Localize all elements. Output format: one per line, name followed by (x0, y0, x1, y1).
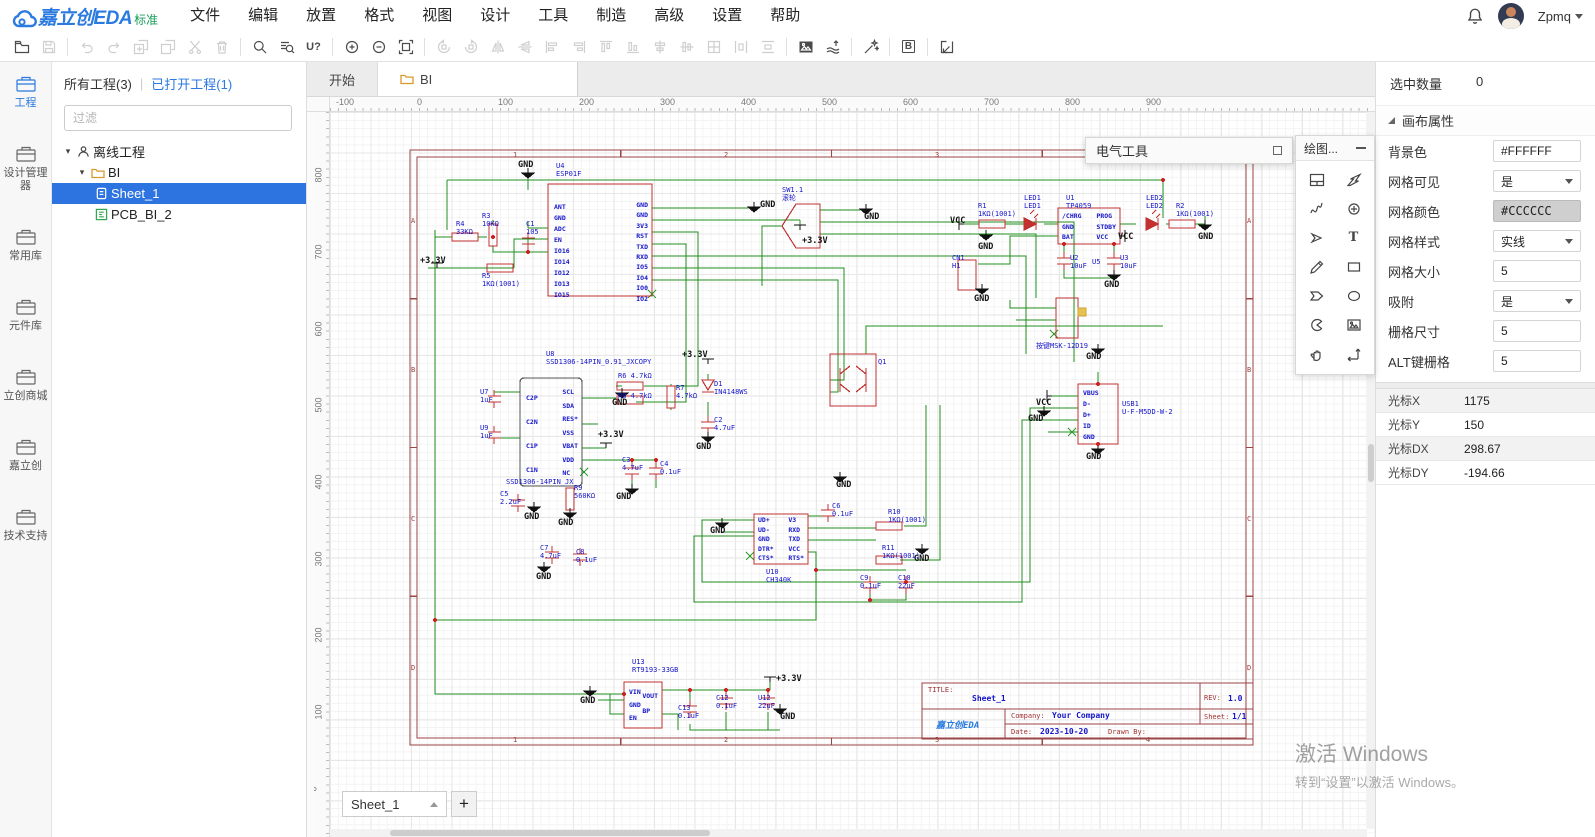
property-label: 吸附 (1388, 292, 1414, 311)
project-panel: 所有工程(3) | 已打开工程(1) ▾ 离线工程 ▾ BI (52, 62, 307, 837)
document-tab[interactable]: 开始 (307, 62, 378, 96)
rail-item[interactable]: 嘉立创 (4, 437, 48, 473)
schematic-label: +3.3V (682, 350, 708, 360)
rail-item[interactable]: 立创商城 (4, 367, 48, 403)
document-tabs: 开始 BI (307, 62, 1375, 97)
ruler-number: 500 (822, 97, 837, 107)
schematic-label: U1 TP4059 (1066, 194, 1091, 211)
chevron-down-icon (1575, 14, 1583, 19)
theme-image-button[interactable] (792, 35, 819, 59)
bus-tool[interactable] (1298, 194, 1335, 223)
ruler-number: 700 (984, 97, 999, 107)
property-row: 网格样式 实线 (1376, 226, 1595, 256)
distribute-horizontal-button (727, 35, 754, 59)
rotate-ccw-button (430, 35, 457, 59)
document-tab-label: BI (420, 72, 432, 87)
ruler-number: 800 (1065, 97, 1080, 107)
tree-node-label: 离线工程 (93, 142, 145, 161)
ruler-number: 900 (1146, 97, 1161, 107)
import-update-button[interactable] (819, 35, 846, 59)
pan-hand-tool[interactable] (1298, 339, 1335, 368)
schematic-label: VCC (950, 216, 965, 226)
schematic-label: C1 105 (526, 220, 539, 237)
schematic-label: VCC (1118, 232, 1133, 242)
property-row: 网格颜色 #CCCCCC (1376, 196, 1595, 226)
schematic-label: GND (696, 442, 711, 452)
rail-item[interactable]: 工程 (4, 74, 48, 110)
open-project-button[interactable] (8, 35, 35, 59)
menubar: 嘉立创EDA 标准 文件编辑放置格式视图设计工具制造高级设置帮助 Zpmq (0, 0, 1595, 32)
property-value-control[interactable]: 5 (1493, 260, 1581, 282)
property-value-control[interactable]: 实线 (1493, 230, 1581, 252)
distribute-vertical-button (754, 35, 781, 59)
cursor-row: 光标DX 298.67 (1376, 437, 1595, 461)
image-tool[interactable] (1335, 310, 1372, 339)
align-right-button (565, 35, 592, 59)
schematic-label: 3 (935, 151, 939, 159)
filter-box (64, 105, 294, 131)
schematic-label: SCL SDA RES* VSS VBAT VDD NC (562, 386, 578, 481)
wizard-button[interactable] (857, 35, 884, 59)
cursor-row-label: 光标DX (1376, 440, 1464, 457)
horizontal-scrollbar-thumb[interactable] (390, 830, 710, 836)
titleblock-company-value: Your Company (1052, 711, 1110, 720)
rail-item-icon (15, 297, 37, 317)
property-row: 网格可见 是 (1376, 166, 1595, 196)
copy-button (127, 35, 154, 59)
vertical-ruler: 8007006005004003002001000 (314, 112, 330, 837)
canvas-wrap: -1000100200300400500600700800900 8007006… (307, 97, 1375, 837)
ruler-number: 200 (314, 627, 324, 642)
cursor-row-value: 298.67 (1464, 442, 1501, 456)
tree-caret-icon: ▾ (76, 167, 88, 178)
rail-item-icon (15, 507, 37, 527)
rectangle-tool[interactable] (1335, 252, 1372, 281)
titleblock-date-value: 2023-10-20 (1040, 727, 1088, 736)
property-row: 栅格尺寸 5 (1376, 316, 1595, 346)
property-label: 网格可见 (1388, 172, 1440, 191)
main-layout: 工程 设计管理器 常用库 元件库 立创商城 嘉立创 技术支持 (0, 62, 1595, 837)
selected-count-value: 0 (1476, 74, 1483, 93)
sheet-bar: Sheet_1 + (342, 791, 477, 817)
find-designator-button[interactable]: U? (300, 35, 327, 59)
schematic-label: 2 (724, 151, 728, 159)
cursor-row: 光标X 1175 (1376, 389, 1595, 413)
titleblock-logo: 嘉立创EDA (936, 718, 979, 731)
bus-entry-tool[interactable] (1335, 194, 1372, 223)
rail-item-label: 常用库 (4, 250, 48, 263)
schematic-label: GND (1086, 452, 1101, 462)
zoom-in-button[interactable] (338, 35, 365, 59)
titleblock-rev-value: 1.0 (1228, 694, 1242, 703)
cursor-row: 光标Y 150 (1376, 413, 1595, 437)
drawing-tools-grid: T (1296, 161, 1374, 372)
text-tool-label: T (1349, 230, 1359, 245)
properties-panel: 选中数量 0 画布属性 背景色 #FFFFFF 网格可见 是 网格颜色 #CCC… (1375, 62, 1595, 837)
drawing-panel-title: 绘图... (1296, 140, 1356, 157)
schematic-label: R10 1KΩ(1001) (888, 508, 926, 525)
find-similar-button[interactable] (273, 35, 300, 59)
rail-item-icon (15, 227, 37, 247)
dimension-tool[interactable] (1335, 339, 1372, 368)
ruler-number: 100 (314, 704, 324, 719)
undo-button (73, 35, 100, 59)
schematic-label: LED2 LED2 (1146, 194, 1163, 211)
schematic-label: 2 (724, 736, 728, 744)
schematic-label: C2 4.7uF (714, 416, 735, 433)
schematic-label: C3 4.7uF (622, 456, 643, 473)
ruler-corner (307, 97, 330, 112)
menu-item[interactable]: 视图 (408, 0, 466, 32)
align-bottom-button (619, 35, 646, 59)
schematic-label: 按键MSK-12D19 (1036, 342, 1088, 350)
titleblock-title-label: TITLE: (928, 686, 953, 694)
paste-button (154, 35, 181, 59)
rail-item[interactable]: 常用库 (4, 227, 48, 263)
schematic-label: R4 33KΩ (456, 220, 473, 237)
folder-icon (91, 167, 105, 179)
schematic-label: GND (1104, 280, 1119, 290)
schematic-label: VBUS D- D+ ID GND (1083, 388, 1099, 443)
arc-tool[interactable] (1298, 310, 1335, 339)
menu-item[interactable]: 设置 (698, 0, 756, 32)
logo-text: 嘉立创EDA (38, 3, 132, 30)
schematic-label: GND GND 3V3 RST TXD RXD IO5 IO4 IO0 IO2 (636, 200, 648, 304)
electrical-tools-panel: 电气工具 (1085, 137, 1293, 164)
rail-item[interactable]: 技术支持 (4, 507, 48, 543)
schematic-label: GND (536, 572, 551, 582)
schematic-label: R6 4.7kΩ (618, 372, 652, 380)
schematic-label: C2P C2N C1P C1N (526, 386, 538, 482)
cloud-logo-icon (12, 10, 38, 30)
schematic-label: C (411, 515, 415, 523)
cursor-position-table: 光标X 1175 光标Y 150 光标DX 298.67 光标DY -194.6… (1376, 389, 1595, 485)
schematic-label: GND (580, 696, 595, 706)
schematic-label: U13 RT9193-33GB (632, 658, 678, 675)
ruler-number: 300 (660, 97, 675, 107)
schematic-label: R11 1KΩ(1001) (882, 544, 920, 561)
schematic-label: R5 1KΩ(1001) (482, 272, 520, 289)
schematic-label: C6 0.1uF (832, 502, 853, 519)
ruler-number: 600 (314, 321, 324, 336)
schematic-label: +3.3V (802, 236, 828, 246)
find-designator-label: U? (306, 41, 321, 53)
titleblock-company-label: Company: (1011, 712, 1045, 720)
sheet-selector[interactable]: Sheet_1 (342, 791, 447, 817)
schematic-label: GND (616, 492, 631, 502)
jlceda-app: 嘉立创EDA 标准 文件编辑放置格式视图设计工具制造高级设置帮助 Zpmq U? (0, 0, 1595, 837)
pcb-icon (95, 208, 108, 221)
cursor-row-value: -194.66 (1464, 466, 1505, 480)
vertical-scrollbar-thumb[interactable] (1368, 444, 1374, 482)
schematic-label: U10 CH340K (766, 568, 791, 585)
current-sheet-label: Sheet_1 (351, 797, 399, 812)
schematic-label: C13 0.1uF (678, 704, 699, 721)
align-center-vertical-button (673, 35, 700, 59)
zoom-out-button[interactable] (365, 35, 392, 59)
schematic-label: Q1 (878, 358, 886, 366)
schematic-label: 1 (513, 736, 517, 744)
rail-item-icon (15, 74, 37, 94)
filter-input[interactable] (64, 105, 292, 131)
cursor-row-label: 光标X (1376, 392, 1464, 409)
redo-button (100, 35, 127, 59)
tree-node-sheet1[interactable]: Sheet_1 (52, 183, 306, 204)
horizontal-ruler: -1000100200300400500600700800900 (330, 97, 1375, 112)
search-button[interactable] (246, 35, 273, 59)
titleblock-drawnby-label: Drawn By: (1108, 728, 1146, 736)
rail-item-label: 工程 (4, 97, 48, 110)
selected-count-label: 选中数量 (1390, 74, 1442, 93)
schematic-label: D (411, 664, 415, 672)
pencil-tool[interactable] (1298, 252, 1335, 281)
schematic-label: U3 10uF (1120, 254, 1137, 271)
menu-item[interactable]: 格式 (350, 0, 408, 32)
cursor-row-label: 光标Y (1376, 416, 1464, 433)
property-value-control[interactable]: 是 (1493, 290, 1581, 312)
cut-button (181, 35, 208, 59)
polygon-tool[interactable] (1298, 281, 1335, 310)
rail-item-label: 元件库 (4, 320, 48, 333)
align-left-button (538, 35, 565, 59)
schematic-label: C9 0.1uF (860, 574, 881, 591)
schematic-label: B (1247, 366, 1251, 374)
left-icon-rail: 工程 设计管理器 常用库 元件库 立创商城 嘉立创 技术支持 (0, 62, 52, 837)
titleblock-sheet-value: 1/1 (1232, 712, 1246, 721)
rail-item-icon (15, 437, 37, 457)
rail-item-icon (15, 367, 37, 387)
app-logo[interactable]: 嘉立创EDA 标准 (12, 3, 158, 30)
menu-item[interactable]: 制造 (582, 0, 640, 32)
schematic-label: V3 RXD TXD VCC RTS* (788, 516, 804, 564)
schematic-label: U5 (1092, 258, 1100, 266)
property-label: 网格颜色 (1388, 202, 1440, 221)
schematic-label: GND (974, 294, 989, 304)
property-value-control[interactable]: #CCCCCC (1493, 200, 1581, 222)
schematic-label: R8 4.7kΩ (618, 392, 652, 400)
schematic-label: GND (518, 160, 533, 170)
rotate-cw-button (457, 35, 484, 59)
bom-button[interactable]: B (895, 35, 922, 59)
cursor-row-label: 光标DY (1376, 464, 1464, 481)
schematic-label: D1 IN4148WS (714, 380, 748, 397)
schematic-label: U2 10uF (1070, 254, 1087, 271)
ruler-number: -100 (336, 97, 354, 107)
user-avatar[interactable] (1498, 3, 1524, 29)
schematic-label: GND (1086, 352, 1101, 362)
schematic-label: R2 1KΩ(1001) (1176, 202, 1214, 219)
zoom-fit-button[interactable] (392, 35, 419, 59)
menu-item[interactable]: 高级 (640, 0, 698, 32)
tree-caret-icon: ▾ (62, 146, 74, 157)
rail-item-label: 立创商城 (4, 390, 48, 403)
schematic-label: C (1247, 515, 1251, 523)
panel-divider (1376, 382, 1595, 389)
schematic-label: R1 1KΩ(1001) (978, 202, 1016, 219)
notification-bell-icon[interactable] (1466, 7, 1484, 25)
folder-icon (400, 73, 414, 85)
schematic-label: +3.3V (420, 256, 446, 266)
tree-node-project-bi[interactable]: ▾ BI (52, 162, 306, 183)
flip-vertical-button (511, 35, 538, 59)
schematic-label: U9 1uF (480, 424, 493, 441)
schematic-label: U4 ESP01F (556, 162, 581, 179)
schematic-label: R7 4.7kΩ (676, 384, 697, 401)
schematic-label: U7 1uF (480, 388, 493, 405)
schematic-label: D (1247, 664, 1251, 672)
schematic-label: LED1 LED1 (1024, 194, 1041, 211)
schematic-label: ANT GND ADC EN IO16 IO14 IO12 IO13 IO15 (554, 202, 570, 301)
align-top-button (592, 35, 619, 59)
schematic-label: C5 2.2uF (500, 490, 521, 507)
schematic-label: VIN GND EN (629, 686, 641, 725)
schematic-label: GND (836, 480, 851, 490)
property-label: 网格大小 (1388, 262, 1440, 281)
rail-item-label: 设计管理器 (4, 167, 48, 193)
schematic-label: GND (558, 518, 573, 528)
schematic-label: C12 0.1uF (716, 694, 737, 711)
schematic-label: C8 0.1uF (576, 548, 597, 565)
ellipse-tool[interactable] (1335, 281, 1372, 310)
ruler-number: 200 (579, 97, 594, 107)
sheet-frame-tool[interactable] (1298, 165, 1335, 194)
property-value-control[interactable]: 5 (1493, 350, 1581, 372)
property-value-control[interactable]: #FFFFFF (1493, 140, 1581, 162)
schematic-label: GND (1028, 414, 1043, 424)
canvas-area: 开始 BI -1000100200300400500600700800900 8… (307, 62, 1375, 837)
rail-item-label: 技术支持 (4, 530, 48, 543)
schematic-label: A (1247, 217, 1251, 225)
tree-node-offline-projects[interactable]: ▾ 离线工程 (52, 141, 306, 162)
menu-item[interactable]: 编辑 (234, 0, 292, 32)
property-value-control[interactable]: 是 (1493, 170, 1581, 192)
ruler-number: 0 (314, 786, 319, 791)
toolbar: U? B (0, 32, 1595, 62)
property-label: 背景色 (1388, 142, 1427, 161)
align-grid-button (700, 35, 727, 59)
document-tab[interactable]: BI (378, 62, 578, 96)
user-menu[interactable]: Zpmq (1538, 9, 1583, 24)
logo-badge: 标准 (134, 11, 158, 28)
menu-item[interactable]: 帮助 (756, 0, 814, 32)
tree-node-label: Sheet_1 (111, 186, 159, 201)
export-button[interactable] (933, 35, 960, 59)
add-sheet-button[interactable]: + (451, 791, 477, 817)
property-label: 网格样式 (1388, 232, 1440, 251)
property-row: 背景色 #FFFFFF (1376, 136, 1595, 166)
schematic-label: UD+ UD- GND DTR* CTS* (758, 516, 774, 564)
align-center-horizontal-button (646, 35, 673, 59)
document-tab-label: 开始 (329, 70, 355, 89)
drawing-tools-panel: 绘图... T (1295, 135, 1375, 375)
titleblock-date-label: Date: (1011, 728, 1032, 736)
schematic-label: U8 SSD1306-14PIN_0.91_JXCOPY (546, 350, 651, 367)
restore-panel-button[interactable] (1273, 146, 1282, 155)
schematic-label: GND (864, 212, 879, 222)
user-icon (77, 145, 90, 158)
chevron-up-icon (430, 802, 438, 807)
project-tabs: 所有工程(3) | 已打开工程(1) (52, 62, 306, 101)
schematic-label: U12 22uF (758, 694, 775, 711)
schematic-label: +3.3V (598, 430, 624, 440)
tree-node-label: PCB_BI_2 (111, 207, 172, 222)
ruler-number: 500 (314, 397, 324, 412)
wire-tool[interactable] (1335, 165, 1372, 194)
schematic-label: GND (1198, 232, 1213, 242)
schematic-label: SW1.1 滚轮 (782, 186, 803, 203)
rail-item-label: 嘉立创 (4, 460, 48, 473)
tree-node-pcb[interactable]: PCB_BI_2 (52, 204, 306, 225)
property-label: 栅格尺寸 (1388, 322, 1440, 341)
titleblock-rev-label: REV: (1204, 694, 1221, 702)
titleblock-sheet-label: Sheet: (1204, 713, 1229, 721)
schematic-label: VCC (1036, 398, 1051, 408)
property-value-control[interactable]: 5 (1493, 320, 1581, 342)
cursor-row-value: 1175 (1464, 394, 1490, 408)
schematic-label: USB1 U-F-M5DD-W-2 (1122, 400, 1173, 417)
schematic-canvas[interactable]: 12341234ABCDABCDGNDGNDGNDGNDGNDGNDGNDGND… (330, 112, 1375, 837)
titleblock-title-value: Sheet_1 (972, 694, 1006, 703)
electrical-tools-title: 电气工具 (1086, 141, 1273, 160)
netflag-tool[interactable] (1298, 223, 1335, 252)
horizontal-scrollbar[interactable] (330, 829, 1367, 837)
ruler-number: 100 (498, 97, 513, 107)
schematic-label: C10 22uF (898, 574, 915, 591)
text-tool[interactable]: T (1335, 223, 1372, 252)
ruler-number: 400 (741, 97, 756, 107)
tab-all-projects[interactable]: 所有工程(3) (64, 74, 132, 93)
rail-item[interactable]: 设计管理器 (4, 144, 48, 193)
canvas-properties-rows: 背景色 #FFFFFF 网格可见 是 网格颜色 #CCCCCC 网格样式 实线 … (1376, 136, 1595, 376)
menu-item[interactable]: 文件 (176, 0, 234, 32)
schematic-label: 3 (935, 736, 939, 744)
canvas-properties-title: 画布属性 (1402, 111, 1454, 130)
menu-item[interactable]: 放置 (292, 0, 350, 32)
project-tree: ▾ 离线工程 ▾ BI Sheet_1 PCB_BI_2 (52, 141, 306, 225)
delete-button (208, 35, 235, 59)
tree-node-label: BI (108, 165, 120, 180)
drawing-panel-header[interactable]: 绘图... (1296, 136, 1374, 161)
menubar-right: Zpmq (1466, 3, 1583, 29)
schematic-label: GND (760, 200, 775, 210)
menu-list: 文件编辑放置格式视图设计工具制造高级设置帮助 (176, 0, 814, 32)
property-row: 吸附 是 (1376, 286, 1595, 316)
property-row: ALT键栅格 5 (1376, 346, 1595, 376)
ruler-number: 400 (314, 474, 324, 489)
canvas-properties-header[interactable]: 画布属性 (1376, 106, 1595, 136)
schematic-label: GND (710, 526, 725, 536)
tab-divider: | (140, 76, 143, 91)
tab-open-projects[interactable]: 已打开工程(1) (151, 74, 232, 93)
schematic-label: B (411, 366, 415, 374)
ruler-number: 0 (417, 97, 422, 107)
schematic-label: /CHRG GND BAT (1062, 211, 1082, 243)
schematic-label: C4 0.1uF (660, 460, 681, 477)
schematic-label: GND (524, 512, 539, 522)
rail-item[interactable]: 元件库 (4, 297, 48, 333)
menu-item[interactable]: 设计 (466, 0, 524, 32)
add-sheet-label: + (459, 794, 469, 814)
schematic-label: C7 4.7uF (540, 544, 561, 561)
property-label: ALT键栅格 (1388, 352, 1450, 371)
schematic-sheet-icon (95, 187, 108, 200)
schematic-label: GND (780, 712, 795, 722)
menu-item[interactable]: 工具 (524, 0, 582, 32)
schematic-label: 1 (513, 151, 517, 159)
property-row: 网格大小 5 (1376, 256, 1595, 286)
minimize-icon[interactable] (1356, 147, 1366, 149)
schematic-label: CN1 H1 (952, 254, 965, 271)
